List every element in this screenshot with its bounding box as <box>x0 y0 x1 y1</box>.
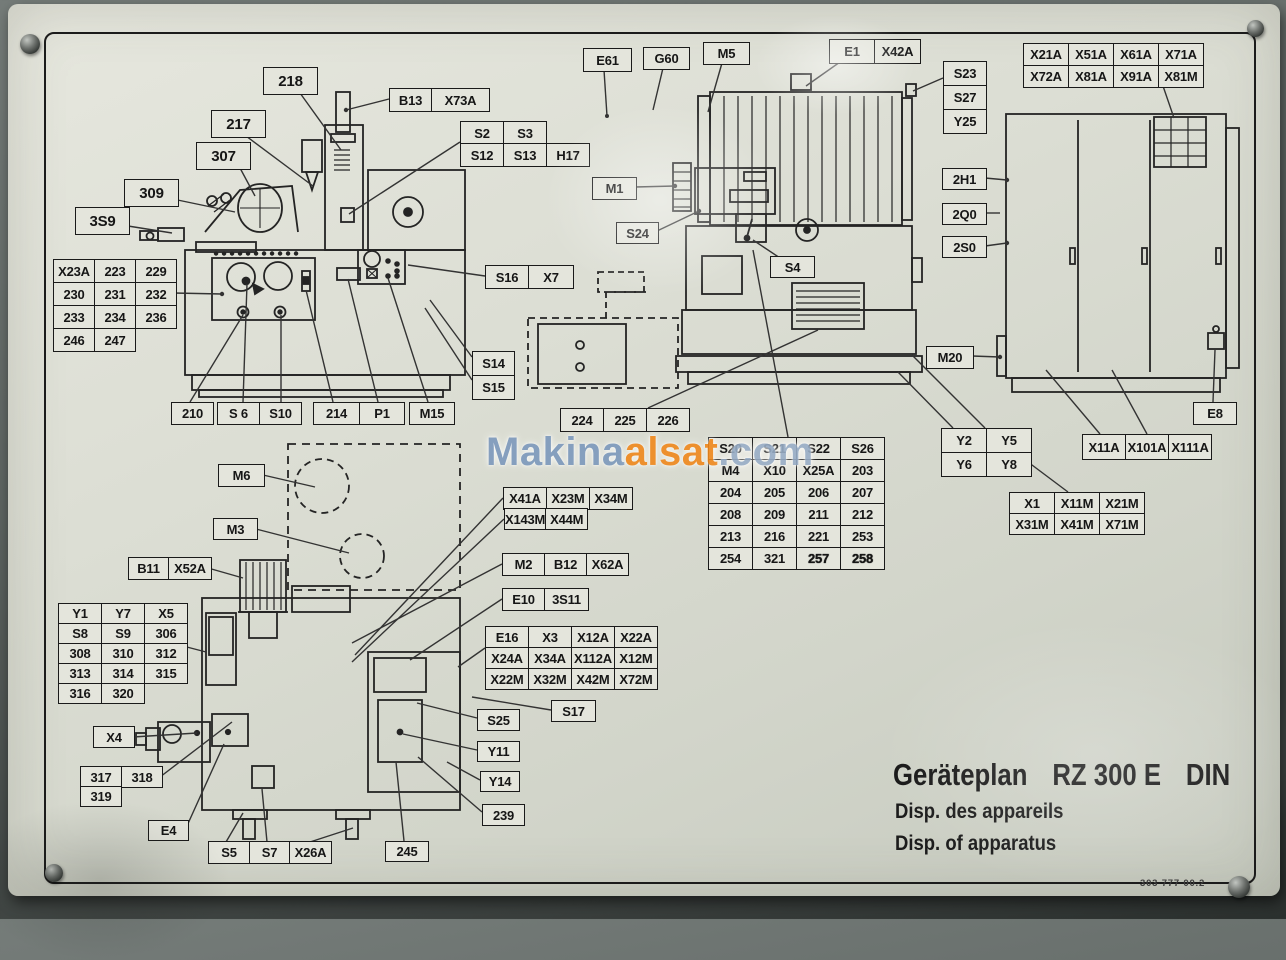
cell-Y2: Y2 <box>942 429 987 453</box>
cell-2H1: 2H1 <box>943 169 987 190</box>
cell-Y11: Y11 <box>478 742 520 762</box>
cell-2Q0: 2Q0 <box>943 204 987 225</box>
doc-number: 303 777 00.2 <box>1140 878 1205 889</box>
cell-X81M: X81M <box>1159 66 1204 88</box>
cell-X42A: X42A <box>875 40 921 64</box>
label-309: 309 <box>124 179 179 207</box>
cell-S25: S25 <box>478 710 520 731</box>
cell-258: 258 <box>841 548 885 570</box>
cell-X23A: X23A <box>54 260 95 283</box>
cell-X61A: X61A <box>1114 44 1159 66</box>
cell-M6: M6 <box>219 465 265 487</box>
label-x11a-x101a-x111a: X11AX101AX111A <box>1082 434 1212 460</box>
cell-232: 232 <box>136 283 177 306</box>
cell-226: 226 <box>647 409 690 432</box>
cell-M3: M3 <box>214 519 258 540</box>
cell-M20: M20 <box>927 347 974 369</box>
cell-X32M: X32M <box>529 669 572 690</box>
label-245: 245 <box>385 841 429 862</box>
label-217: 217 <box>211 110 266 138</box>
cell-218: 218 <box>264 68 318 95</box>
cell-253: 253 <box>841 526 885 548</box>
cell-229: 229 <box>136 260 177 283</box>
corner-screw <box>45 864 63 882</box>
plate-title: Geräteplan <box>893 757 1027 793</box>
cell-X31M: X31M <box>1010 514 1055 535</box>
corner-screw <box>20 34 40 54</box>
label-307: 307 <box>196 142 251 170</box>
label-s6-s10: S 6S10 <box>217 402 302 425</box>
watermark-part: Makina <box>486 430 625 474</box>
cell-203: 203 <box>841 460 885 482</box>
cell-X11A: X11A <box>1083 435 1126 460</box>
cell-318: 318 <box>122 767 163 788</box>
cell-Y5: Y5 <box>987 429 1032 453</box>
cell-X112A: X112A <box>572 648 615 669</box>
cell-223: 223 <box>95 260 136 283</box>
watermark-part: .com <box>718 430 813 474</box>
cell-X91A: X91A <box>1114 66 1159 88</box>
cell-X101A: X101A <box>1126 435 1169 460</box>
cell-X21M: X21M <box>1100 493 1145 514</box>
cell-B12: B12 <box>545 554 587 576</box>
cell-Y1: Y1 <box>59 604 102 624</box>
label-319: 319 <box>80 786 122 807</box>
table-y1: Y1Y7X5S8S9306308310312313314315316320 <box>58 603 188 704</box>
cell-216: 216 <box>753 526 797 548</box>
cell-X12A: X12A <box>572 627 615 648</box>
cell-207: 207 <box>841 482 885 504</box>
cell-S17: S17 <box>552 701 596 722</box>
cell-X81A: X81A <box>1069 66 1114 88</box>
cell-S27: S27 <box>944 86 987 110</box>
label-s5-s7-x26a: S5S7X26A <box>208 841 332 864</box>
label-x41a-x23m-x34m: X41AX23MX34M <box>503 487 633 510</box>
cell-S15: S15 <box>473 376 515 400</box>
cell-Y25: Y25 <box>944 110 987 134</box>
label-m5: M5 <box>703 42 750 65</box>
cell-E10: E10 <box>503 589 545 611</box>
label-y14: Y14 <box>480 771 520 792</box>
cell-E8: E8 <box>1194 403 1237 425</box>
subtitle-french: Disp. des appareils <box>895 800 1063 824</box>
cell-245: 245 <box>386 842 429 862</box>
cell-B13: B13 <box>390 89 432 112</box>
watermark: Makinaalsat.com <box>486 430 814 475</box>
label-239: 239 <box>482 804 525 826</box>
cell-X22A: X22A <box>615 627 658 648</box>
cell-S16: S16 <box>486 266 529 289</box>
label-p1: P1 <box>359 402 405 425</box>
label-g60: G60 <box>643 47 690 70</box>
cell-230: 230 <box>54 283 95 306</box>
cell-X44M: X44M <box>546 509 588 530</box>
corner-screw <box>1247 20 1264 37</box>
photo-of-device-plan-plate: { "watermark": { "parts": [ {"text": "Ma… <box>0 0 1286 919</box>
cell-308: 308 <box>59 644 102 664</box>
cell-X11M: X11M <box>1055 493 1100 514</box>
cell-2S0: 2S0 <box>943 237 987 258</box>
table-x1: X1X11MX21MX31MX41MX71M <box>1009 492 1145 535</box>
label-m3: M3 <box>213 518 258 540</box>
label-214: 214 <box>313 402 360 425</box>
cell-3S9: 3S9 <box>76 208 130 235</box>
cell-231: 231 <box>95 283 136 306</box>
label-s16-x7: S16X7 <box>485 265 574 289</box>
label-2s0: 2S0 <box>942 236 987 258</box>
cell-310: 310 <box>102 644 145 664</box>
cell-217: 217 <box>212 111 266 138</box>
cell-S5: S5 <box>209 842 250 864</box>
label-m20: M20 <box>926 346 974 369</box>
cell-X72A: X72A <box>1024 66 1069 88</box>
cell-Y14: Y14 <box>481 772 520 792</box>
cell-X143M: X143M <box>505 509 546 530</box>
cell-309: 309 <box>125 180 179 207</box>
cell-225: 225 <box>604 409 647 432</box>
label-317-318: 317318 <box>80 766 163 788</box>
cell-246: 246 <box>54 329 95 352</box>
label-3s9: 3S9 <box>75 207 130 235</box>
corner-screw <box>1228 876 1250 898</box>
cell-234: 234 <box>95 306 136 329</box>
cell-S4: S4 <box>771 257 815 278</box>
cell-313: 313 <box>59 664 102 684</box>
cell-205: 205 <box>753 482 797 504</box>
label-s24: S24 <box>616 222 659 244</box>
cell-X111A: X111A <box>1169 435 1212 460</box>
cell-247: 247 <box>95 329 136 352</box>
label-e1-x42a: E1X42A <box>829 39 921 64</box>
cell-X24A: X24A <box>486 648 529 669</box>
label-s2-s3: S2S3 <box>460 121 547 145</box>
cell-M1: M1 <box>593 178 637 200</box>
label-210: 210 <box>171 402 214 425</box>
cell-M2: M2 <box>503 554 545 576</box>
cell-X71M: X71M <box>1100 514 1145 535</box>
cell-S9: S9 <box>102 624 145 644</box>
cell-X42M: X42M <box>572 669 615 690</box>
cell-321: 321 <box>753 548 797 570</box>
cell-Y6: Y6 <box>942 453 987 477</box>
cell-306: 306 <box>145 624 188 644</box>
label-y11: Y11 <box>477 741 520 762</box>
cell-3S11: 3S11 <box>545 589 589 611</box>
cell-236: 236 <box>136 306 177 329</box>
label-m15: M15 <box>409 402 455 425</box>
table-x21a: X21AX51AX61AX71AX72AX81AX91AX81M <box>1023 43 1204 88</box>
label-x143m-x44m: X143MX44M <box>504 508 588 530</box>
cell-X23M: X23M <box>547 488 590 510</box>
label-m6: M6 <box>218 464 265 487</box>
cell-X52A: X52A <box>169 558 212 580</box>
cell-S24: S24 <box>617 223 659 244</box>
title-block: Geräteplan RZ 300 E DIN <box>893 757 1230 793</box>
cell-212: 212 <box>841 504 885 526</box>
label-m2-b12-x62a: M2B12X62A <box>502 553 629 576</box>
label-b13-x73a: B13X73A <box>389 88 490 112</box>
label-s25: S25 <box>477 709 520 731</box>
cell-X34A: X34A <box>529 648 572 669</box>
cell-X71A: X71A <box>1159 44 1204 66</box>
label-2q0: 2Q0 <box>942 203 987 225</box>
cell-E1: E1 <box>830 40 875 64</box>
cell-E16: E16 <box>486 627 529 648</box>
cell-S14: S14 <box>473 352 515 376</box>
cell-S7: S7 <box>250 842 290 864</box>
cell-X4: X4 <box>94 727 135 748</box>
plate-standard: DIN <box>1186 757 1230 793</box>
cell-221: 221 <box>797 526 841 548</box>
cell-Y8: Y8 <box>987 453 1032 477</box>
table-s23-s27-y25: S23S27Y25 <box>943 61 987 134</box>
cell-204: 204 <box>709 482 753 504</box>
cell-S8: S8 <box>59 624 102 644</box>
cell-P1: P1 <box>360 403 405 425</box>
label-e4: E4 <box>148 820 189 841</box>
cell-X41A: X41A <box>504 488 547 510</box>
cell-X21A: X21A <box>1024 44 1069 66</box>
cell-X34M: X34M <box>590 488 633 510</box>
label-x4: X4 <box>93 726 135 748</box>
cell-G60: G60 <box>644 48 690 70</box>
subtitle-english: Disp. of apparatus <box>895 832 1056 856</box>
cell-S2: S2 <box>461 122 504 145</box>
cell-224: 224 <box>561 409 604 432</box>
cell-S 6: S 6 <box>218 403 260 425</box>
cell-B11: B11 <box>129 558 169 580</box>
cell-X12M: X12M <box>615 648 658 669</box>
cell-M5: M5 <box>704 43 750 65</box>
cell-X26A: X26A <box>290 842 332 864</box>
cell-208: 208 <box>709 504 753 526</box>
cell-214: 214 <box>314 403 360 425</box>
label-224-225-226: 224225226 <box>560 408 690 432</box>
cell-314: 314 <box>102 664 145 684</box>
cell-239: 239 <box>483 805 525 826</box>
cell-X5: X5 <box>145 604 188 624</box>
cell-X3: X3 <box>529 627 572 648</box>
label-s17: S17 <box>551 700 596 722</box>
table-s14-s15: S14S15 <box>472 351 515 400</box>
cell-315: 315 <box>145 664 188 684</box>
cell-211: 211 <box>797 504 841 526</box>
table-e16: E16X3X12AX22AX24AX34AX112AX12MX22MX32MX4… <box>485 626 658 690</box>
cell-S12: S12 <box>461 144 504 167</box>
cell-257: 257 <box>797 548 841 570</box>
cell-254: 254 <box>709 548 753 570</box>
cell-S26: S26 <box>841 438 885 460</box>
cell-S10: S10 <box>260 403 302 425</box>
label-s4: S4 <box>770 256 815 278</box>
cell-320: 320 <box>102 684 145 704</box>
cell-209: 209 <box>753 504 797 526</box>
label-e8: E8 <box>1193 402 1237 425</box>
cell-X73A: X73A <box>432 89 490 112</box>
cell-316: 316 <box>59 684 102 704</box>
cell-E4: E4 <box>149 821 189 841</box>
cell-M15: M15 <box>410 403 455 425</box>
cell-H17: H17 <box>547 144 590 167</box>
cell-S23: S23 <box>944 62 987 86</box>
table-y2-y5-y6-y8: Y2Y5Y6Y8 <box>941 428 1032 477</box>
cell-206: 206 <box>797 482 841 504</box>
cell-317: 317 <box>81 767 122 788</box>
cell-S3: S3 <box>504 122 547 145</box>
cell-312: 312 <box>145 644 188 664</box>
cell-X1: X1 <box>1010 493 1055 514</box>
cell-233: 233 <box>54 306 95 329</box>
cell-X62A: X62A <box>587 554 629 576</box>
cell-307: 307 <box>197 143 251 170</box>
label-m1: M1 <box>592 177 637 200</box>
cell-E61: E61 <box>584 49 632 72</box>
label-e61: E61 <box>583 48 632 72</box>
cell-X51A: X51A <box>1069 44 1114 66</box>
plate-model: RZ 300 E <box>1052 757 1161 793</box>
cell-Y7: Y7 <box>102 604 145 624</box>
cell-213: 213 <box>709 526 753 548</box>
cell-S13: S13 <box>504 144 547 167</box>
cell-X7: X7 <box>529 266 574 289</box>
cell-319: 319 <box>81 787 122 807</box>
label-b11-x52a: B11X52A <box>128 557 212 580</box>
cell-X22M: X22M <box>486 669 529 690</box>
label-218: 218 <box>263 67 318 95</box>
watermark-part: alsat <box>625 430 719 474</box>
cell-210: 210 <box>172 403 214 425</box>
cell-X41M: X41M <box>1055 514 1100 535</box>
cell-X72M: X72M <box>615 669 658 690</box>
label-2h1: 2H1 <box>942 168 987 190</box>
label-e10-3s11: E103S11 <box>502 588 589 611</box>
label-s12-s13-h17: S12S13H17 <box>460 143 590 167</box>
table-x23a: X23A223229230231232233234236246247 <box>53 259 177 352</box>
